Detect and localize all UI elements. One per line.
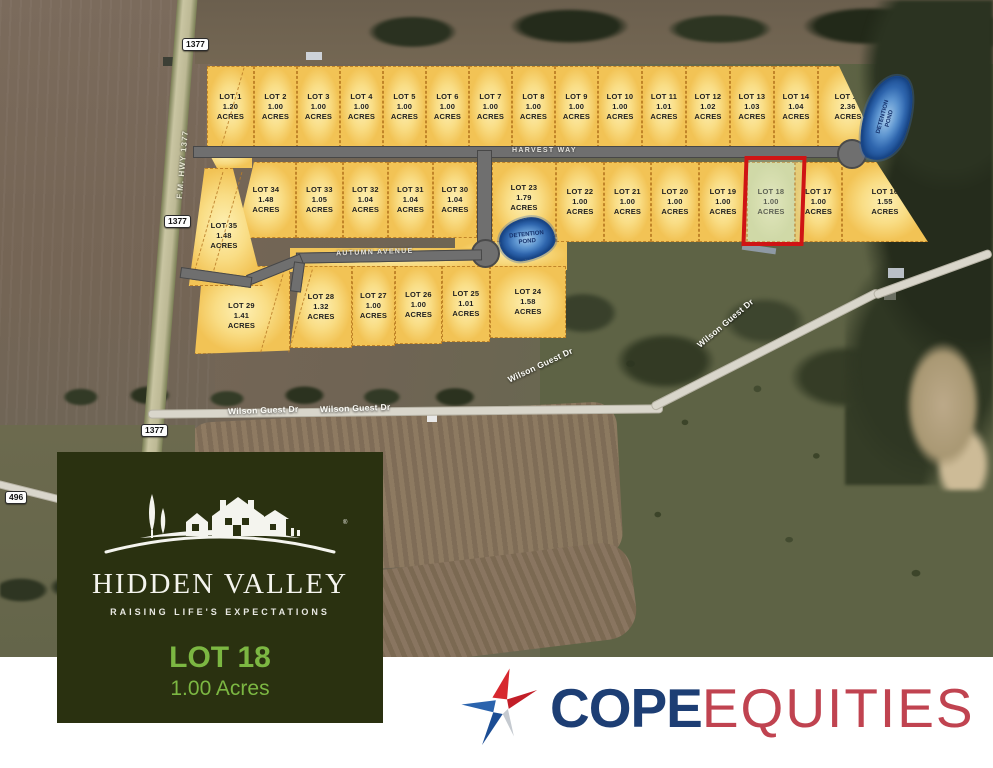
brand-panel: ® HIDDEN VALLEY RAISING LIFE'S EXPECTATI…	[57, 452, 383, 723]
lot-3-label: LOT 31.00ACRES	[305, 92, 332, 122]
lot-3-parcel: LOT 31.00ACRES	[297, 66, 340, 148]
lot-4-label: LOT 41.00ACRES	[348, 92, 375, 122]
lot-31-label: LOT 311.04ACRES	[397, 185, 424, 215]
street-label: HARVEST WAY	[512, 147, 577, 154]
lot-4-parcel: LOT 41.00ACRES	[340, 66, 383, 148]
lot-18-highlight	[741, 156, 806, 246]
lot-10-label: LOT 101.00ACRES	[606, 92, 633, 122]
featured-lot-title: LOT 18	[169, 641, 271, 675]
lot-map-flyer: LOT 11.20ACRESLOT 21.00ACRESLOT 31.00ACR…	[0, 0, 993, 768]
lot-12-parcel: LOT 121.02ACRES	[686, 66, 730, 148]
lot-17-label: LOT 171.00ACRES	[805, 187, 832, 217]
lot-22-parcel: LOT 221.00ACRES	[556, 162, 604, 242]
equities-wordmark: EQUITIES	[702, 681, 975, 736]
lot-26-label: LOT 261.00ACRES	[405, 290, 432, 320]
featured-lot-acres: 1.00 Acres	[170, 677, 269, 701]
brand-name: HIDDEN VALLEY	[92, 568, 348, 601]
lot-27-label: LOT 271.00ACRES	[360, 291, 387, 321]
lot-19-parcel: LOT 191.00ACRES	[699, 162, 747, 242]
lot-9-parcel: LOT 91.00ACRES	[555, 66, 598, 148]
lot-31-parcel: LOT 311.04ACRES	[388, 162, 433, 238]
lot-13-label: LOT 131.03ACRES	[738, 92, 765, 122]
lot-27-parcel: LOT 271.00ACRES	[352, 266, 395, 346]
detention-pond: DETENTION POND	[864, 74, 910, 162]
lot-20-label: LOT 201.00ACRES	[661, 187, 688, 217]
lot-9-label: LOT 91.00ACRES	[563, 92, 590, 122]
lot-6-label: LOT 61.00ACRES	[434, 92, 461, 122]
lot-25-label: LOT 251.01ACRES	[452, 289, 479, 319]
eroded-area	[893, 320, 993, 490]
lot-33-label: LOT 331.05ACRES	[306, 185, 333, 215]
lot-32-parcel: LOT 321.04ACRES	[343, 162, 388, 238]
cope-star-icon	[458, 664, 544, 752]
cope-wordmark: COPE	[550, 681, 702, 736]
registered-mark: ®	[343, 520, 347, 526]
lot-8-label: LOT 81.00ACRES	[520, 92, 547, 122]
lot-24-parcel: LOT 241.58ACRES	[490, 266, 566, 338]
lot-2-parcel: LOT 21.00ACRES	[254, 66, 297, 148]
highway-badge: 1377	[182, 38, 209, 51]
lot-5-label: LOT 51.00ACRES	[391, 92, 418, 122]
lot-22-label: LOT 221.00ACRES	[566, 187, 593, 217]
lot-1-parcel: LOT 11.20ACRES	[207, 66, 254, 148]
lot-33-parcel: LOT 331.05ACRES	[296, 162, 343, 238]
highway-badge: 1377	[164, 215, 191, 228]
highway-badge: 1377	[141, 424, 168, 437]
lot-8-parcel: LOT 81.00ACRES	[512, 66, 555, 148]
lot-21-label: LOT 211.00ACRES	[614, 187, 641, 217]
lot-11-label: LOT 111.01ACRES	[650, 92, 677, 122]
lot-5-parcel: LOT 51.00ACRES	[383, 66, 426, 148]
lot-2-label: LOT 21.00ACRES	[262, 92, 289, 122]
lot-1-label: LOT 11.20ACRES	[217, 92, 244, 122]
hidden-valley-logo-icon	[100, 466, 340, 562]
lot-32-label: LOT 321.04ACRES	[352, 185, 379, 215]
lot-29-label: LOT 291.41ACRES	[228, 301, 255, 331]
lot-25-parcel: LOT 251.01ACRES	[442, 266, 490, 342]
lot-16-label: LOT 161.55ACRES	[871, 187, 898, 217]
lot-19-label: LOT 191.00ACRES	[709, 187, 736, 217]
highway-badge: 496	[5, 491, 27, 504]
lot-14-parcel: LOT 141.04ACRES	[774, 66, 818, 148]
lot-7-parcel: LOT 71.00ACRES	[469, 66, 512, 148]
lot-30-label: LOT 301.04ACRES	[441, 185, 468, 215]
lot-11-parcel: LOT 111.01ACRES	[642, 66, 686, 148]
lot-34-label: LOT 341.48ACRES	[252, 185, 279, 215]
lot-7-label: LOT 71.00ACRES	[477, 92, 504, 122]
lot-20-parcel: LOT 201.00ACRES	[651, 162, 699, 242]
lot-21-parcel: LOT 211.00ACRES	[604, 162, 651, 242]
lot-6-parcel: LOT 61.00ACRES	[426, 66, 469, 148]
lot-12-label: LOT 121.02ACRES	[694, 92, 721, 122]
lot-24-label: LOT 241.58ACRES	[514, 287, 541, 317]
lot-23-label: LOT 231.79ACRES	[510, 183, 537, 213]
farm-building	[888, 268, 904, 278]
detention-pond: DETENTION POND	[499, 218, 555, 260]
farm-building	[306, 52, 322, 60]
cope-equities-logo: COPE EQUITIES	[458, 662, 983, 754]
tree-clusters-middle	[550, 265, 880, 425]
lot-10-parcel: LOT 101.00ACRES	[598, 66, 642, 148]
brand-tagline: RAISING LIFE'S EXPECTATIONS	[110, 607, 330, 617]
lot-14-label: LOT 141.04ACRES	[782, 92, 809, 122]
lot-28-label: LOT 281.32ACRES	[307, 292, 334, 322]
lot-13-parcel: LOT 131.03ACRES	[730, 66, 774, 148]
lot-26-parcel: LOT 261.00ACRES	[395, 266, 442, 344]
lot-30-parcel: LOT 301.04ACRES	[433, 162, 477, 238]
